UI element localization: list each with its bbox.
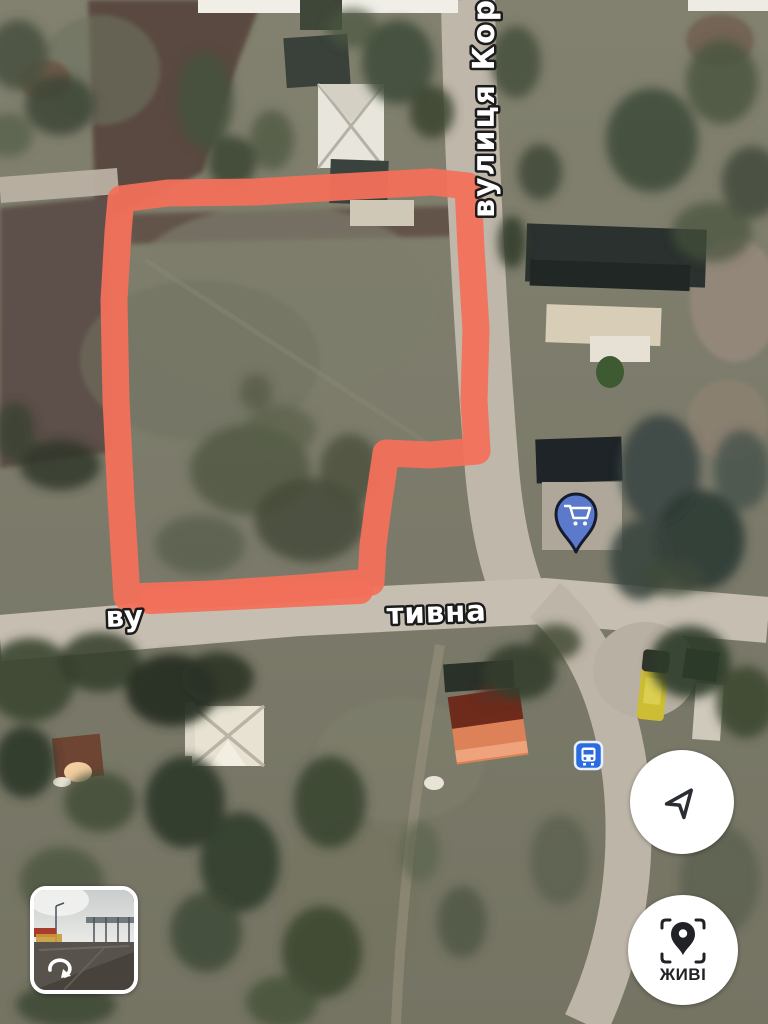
live-view-pin-scan-icon	[657, 915, 709, 967]
street-view-preview-image	[34, 890, 134, 990]
navigation-arrow-icon	[652, 772, 712, 832]
street-view-preview[interactable]	[30, 886, 138, 994]
bus-stop-marker[interactable]	[575, 742, 602, 769]
street-label-vertical: вулиця Кор	[467, 0, 502, 218]
navigation-button[interactable]	[630, 750, 734, 854]
plot-outline-overdraw	[150, 591, 360, 601]
maps-app-screen: вулиця Кор ву тивна	[0, 0, 768, 1024]
satellite-map[interactable]: вулиця Кор ву тивна	[0, 0, 768, 1024]
street-label-horizontal-prefix: ву	[105, 599, 144, 634]
live-view-button[interactable]: ЖИВІ	[628, 895, 738, 1005]
street-label-horizontal-suffix: тивна	[386, 594, 487, 631]
live-view-label: ЖИВІ	[660, 965, 707, 985]
shop-building-roof	[535, 437, 622, 484]
